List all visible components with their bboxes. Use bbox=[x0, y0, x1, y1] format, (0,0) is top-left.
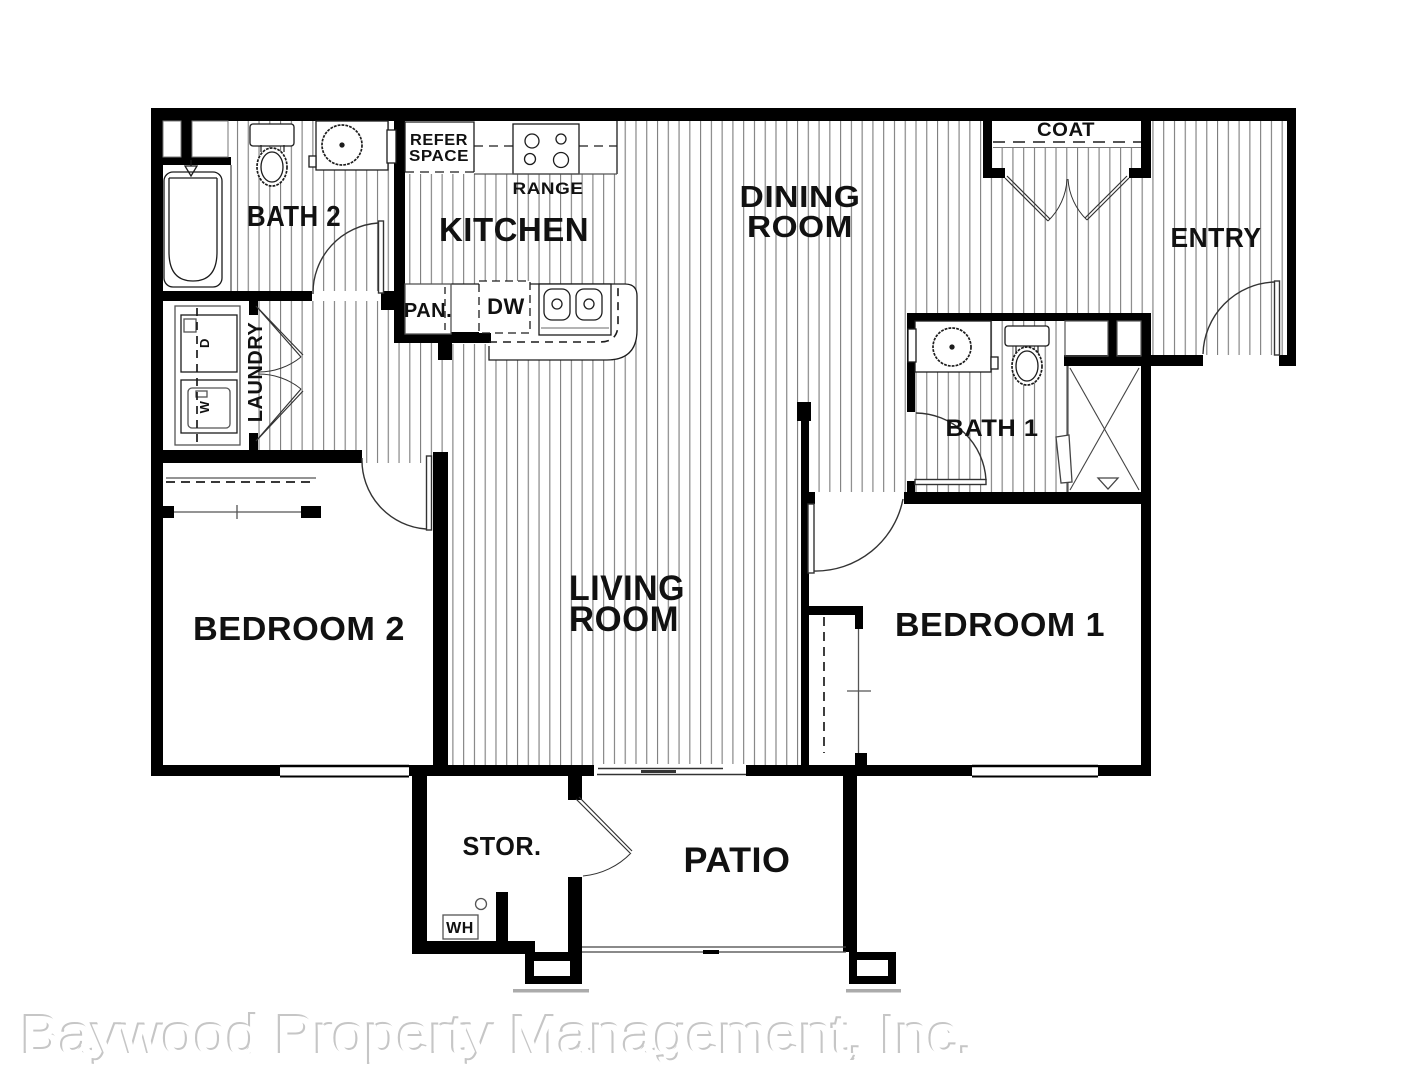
svg-text:BEDROOM 2: BEDROOM 2 bbox=[193, 610, 405, 647]
svg-text:KITCHEN: KITCHEN bbox=[439, 211, 589, 248]
svg-text:ROOM: ROOM bbox=[747, 209, 853, 244]
svg-text:BEDROOM 1: BEDROOM 1 bbox=[895, 606, 1105, 643]
svg-text:PATIO: PATIO bbox=[684, 841, 791, 880]
svg-text:STOR.: STOR. bbox=[463, 831, 542, 861]
svg-text:SPACE: SPACE bbox=[409, 148, 469, 165]
svg-text:DW: DW bbox=[487, 294, 525, 319]
svg-text:ENTRY: ENTRY bbox=[1171, 222, 1262, 253]
svg-text:BATH 2: BATH 2 bbox=[247, 201, 341, 233]
svg-text:COAT: COAT bbox=[1037, 120, 1095, 141]
svg-text:RANGE: RANGE bbox=[513, 179, 584, 198]
svg-text:PAN.: PAN. bbox=[404, 300, 452, 322]
svg-text:ROOM: ROOM bbox=[569, 600, 679, 639]
svg-text:LAUNDRY: LAUNDRY bbox=[245, 322, 267, 423]
svg-text:WH: WH bbox=[446, 920, 474, 937]
svg-text:Baywood Property Management, I: Baywood Property Management, Inc. bbox=[22, 1006, 974, 1066]
svg-text:BATH 1: BATH 1 bbox=[946, 415, 1039, 442]
svg-text:D: D bbox=[197, 338, 212, 348]
svg-text:W: W bbox=[197, 400, 212, 413]
svg-text:REFER: REFER bbox=[410, 132, 468, 149]
